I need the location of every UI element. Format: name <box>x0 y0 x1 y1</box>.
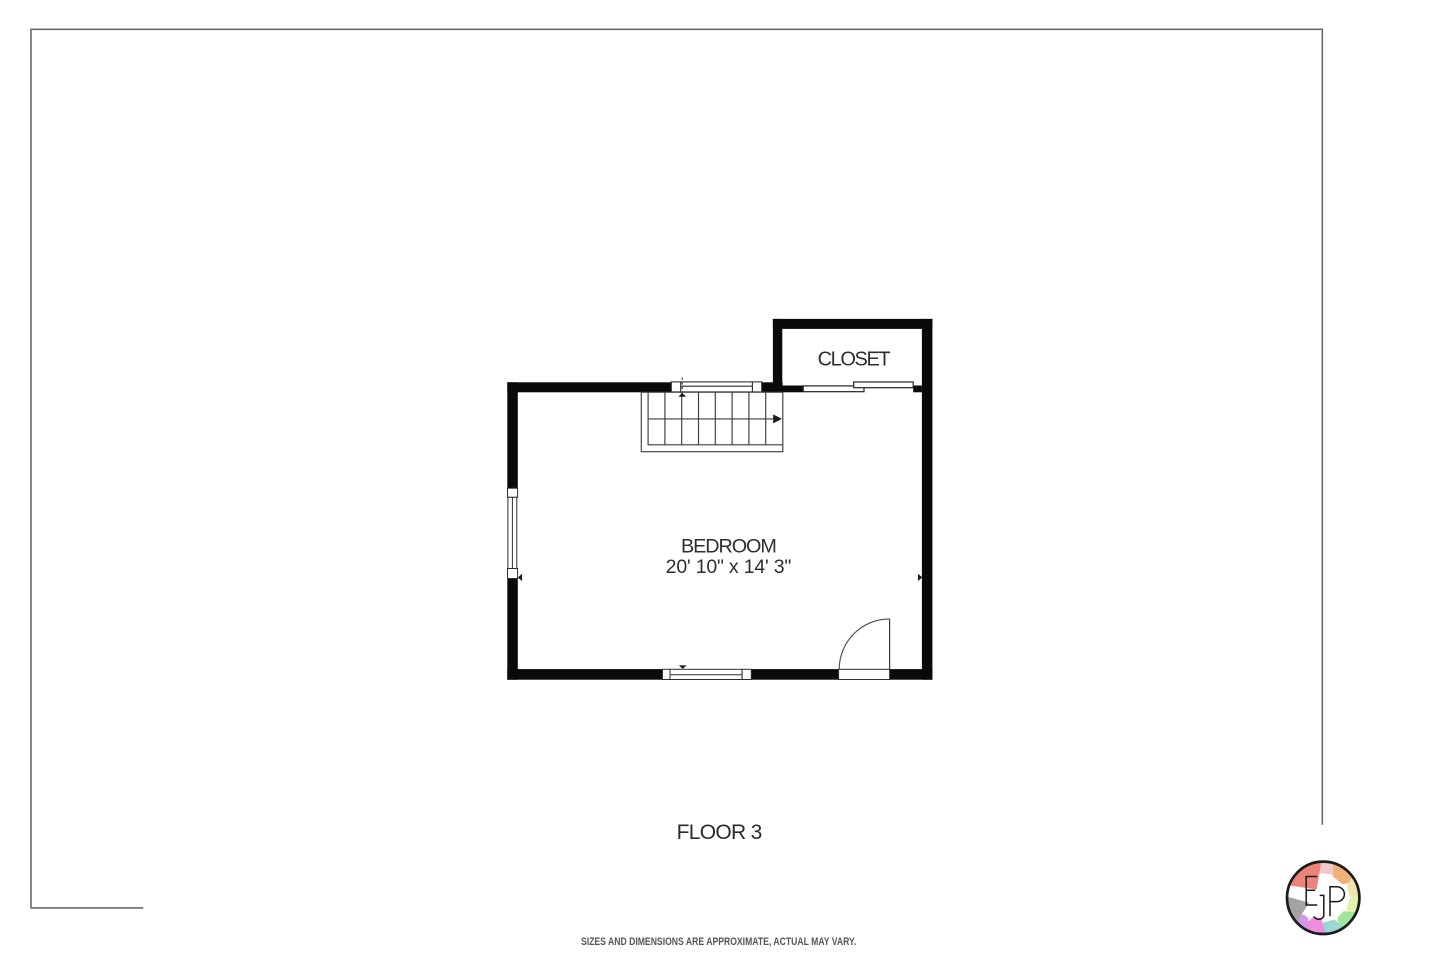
svg-text:20' 10" x 14' 3": 20' 10" x 14' 3" <box>666 556 792 578</box>
svg-text:SIZES AND DIMENSIONS ARE APPRO: SIZES AND DIMENSIONS ARE APPROXIMATE, AC… <box>581 936 857 948</box>
svg-text:CLOSET: CLOSET <box>818 348 891 370</box>
svg-text:FLOOR 3: FLOOR 3 <box>677 821 762 844</box>
svg-text:BEDROOM: BEDROOM <box>681 536 776 558</box>
